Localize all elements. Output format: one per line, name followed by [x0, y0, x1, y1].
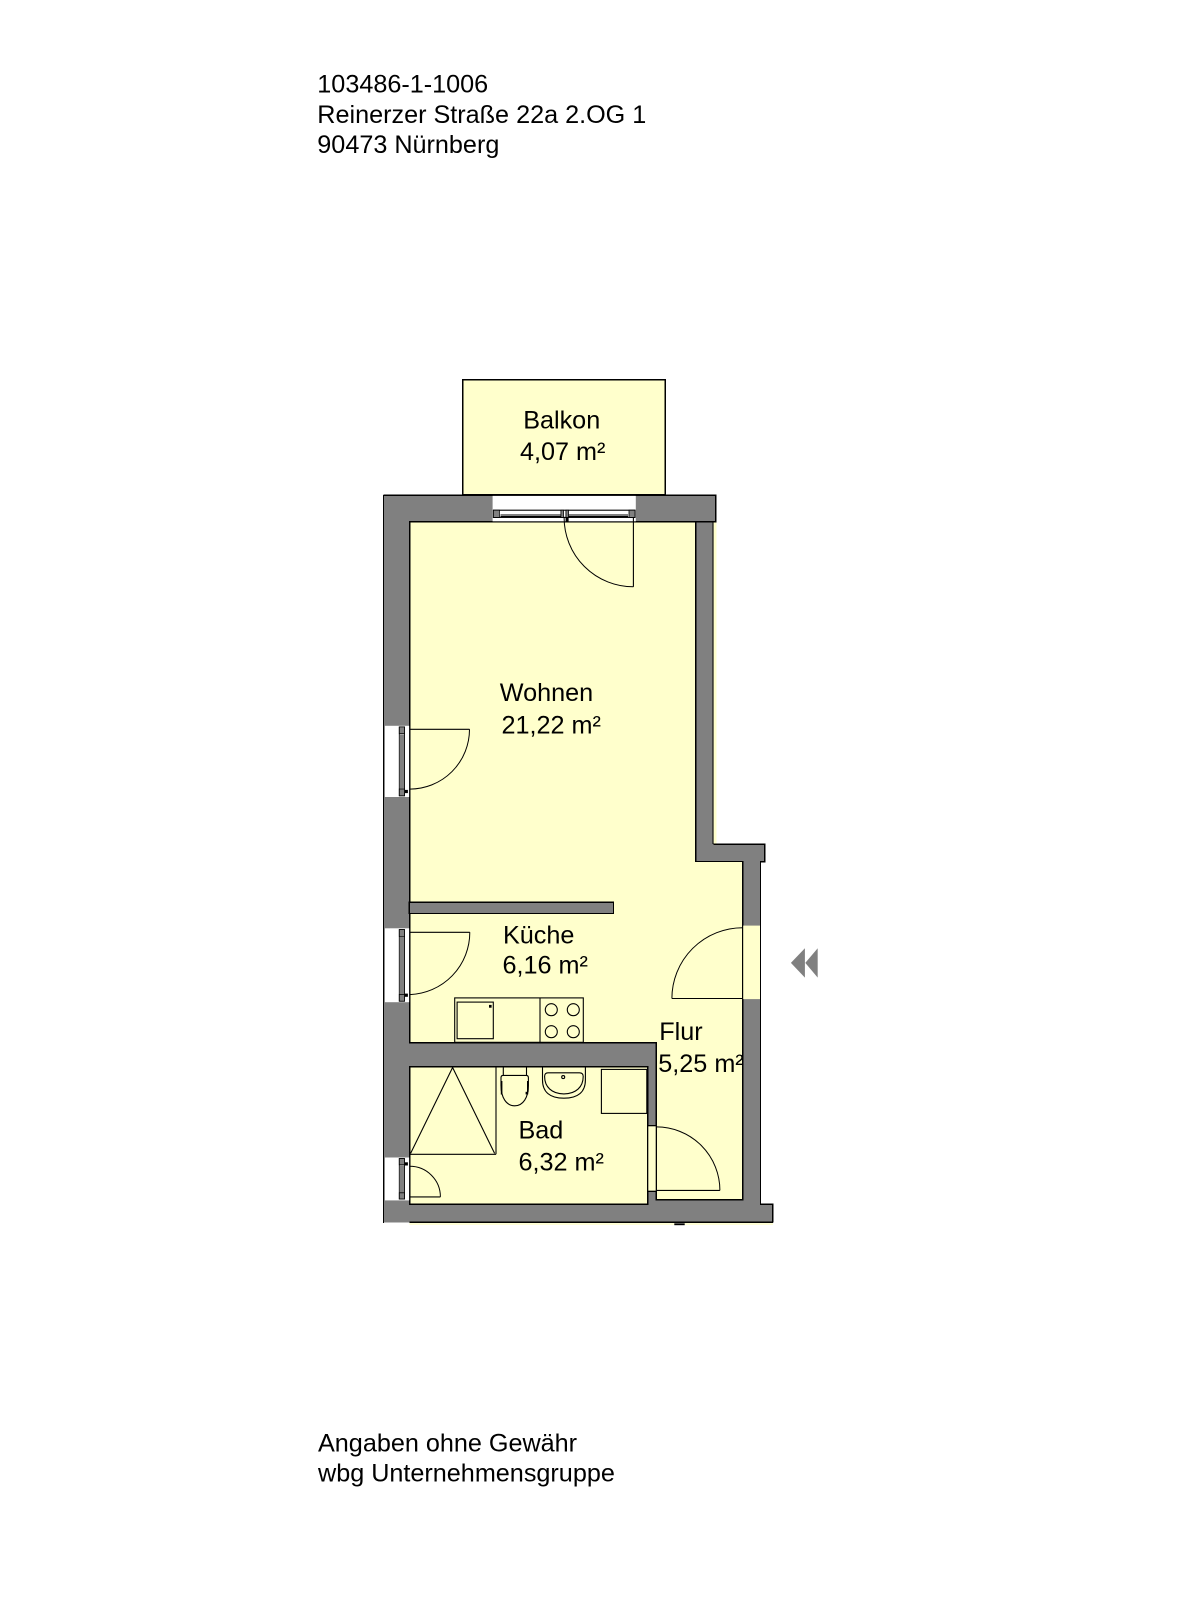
svg-text:Angaben ohne Gewähr: Angaben ohne Gewähr	[318, 1430, 577, 1458]
svg-text:Bad: Bad	[519, 1116, 564, 1144]
svg-text:Küche: Küche	[503, 922, 574, 950]
svg-text:21,22 m²: 21,22 m²	[502, 711, 601, 739]
svg-text:5,25 m²: 5,25 m²	[658, 1050, 743, 1078]
svg-text:4,07 m²: 4,07 m²	[520, 438, 605, 466]
svg-text:Wohnen: Wohnen	[500, 679, 593, 707]
svg-text:wbg Unternehmensgruppe: wbg Unternehmensgruppe	[317, 1460, 615, 1488]
svg-text:Reinerzer Straße 22a 2.OG 1: Reinerzer Straße 22a 2.OG 1	[317, 101, 646, 129]
svg-text:6,16 m²: 6,16 m²	[503, 951, 588, 979]
svg-text:Flur: Flur	[659, 1018, 702, 1046]
svg-text:90473 Nürnberg: 90473 Nürnberg	[317, 131, 499, 159]
svg-text:6,32 m²: 6,32 m²	[519, 1148, 604, 1176]
svg-text:103486-1-1006: 103486-1-1006	[317, 71, 488, 99]
svg-text:Balkon: Balkon	[523, 406, 600, 434]
